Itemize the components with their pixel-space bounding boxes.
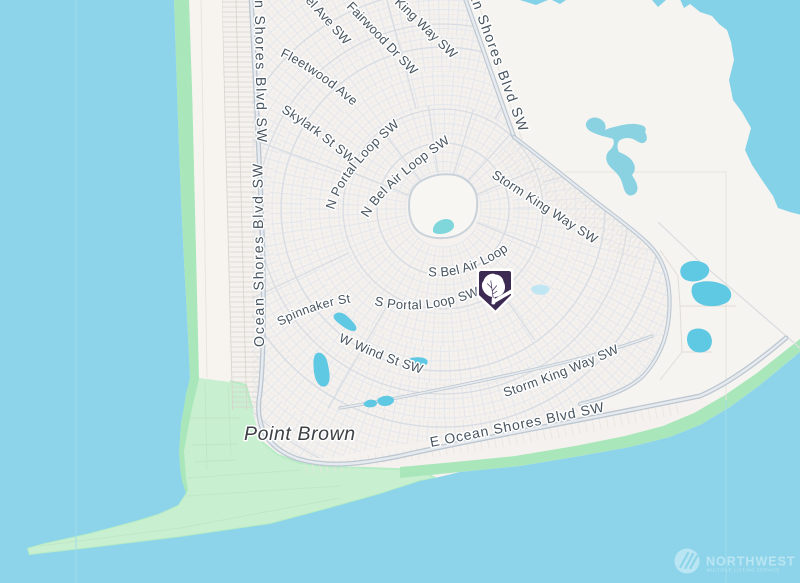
svg-text:MULTIPLE LISTING SERVICE: MULTIPLE LISTING SERVICE [707,568,780,573]
svg-text:NORTHWEST: NORTHWEST [706,555,796,569]
svg-text:Ocean Shores Blvd SW: Ocean Shores Blvd SW [250,162,268,347]
svg-text:Ocean Shores Blvd SW: Ocean Shores Blvd SW [250,0,269,144]
svg-text:Point Brown: Point Brown [244,423,356,445]
